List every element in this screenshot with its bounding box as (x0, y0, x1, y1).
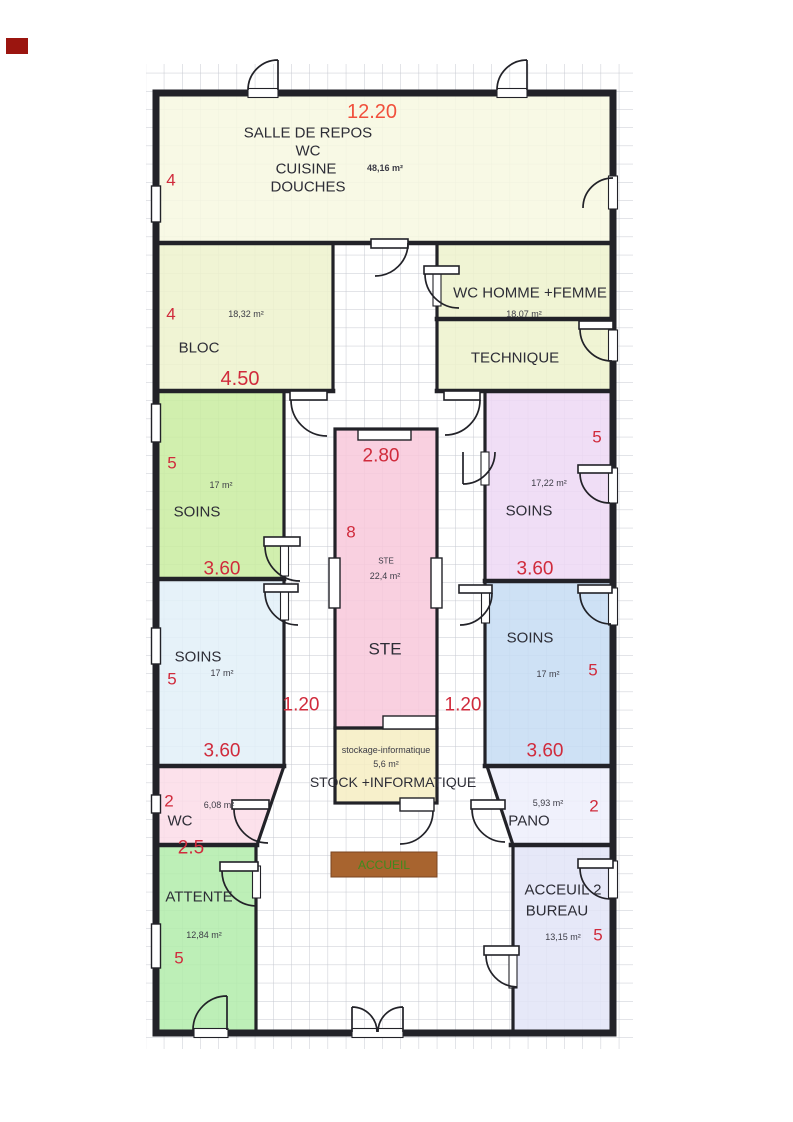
dim-soins-ne-height: 5 (592, 428, 601, 447)
window (152, 795, 161, 813)
label-pano: PANO (508, 813, 549, 830)
dim-soins-se-width: 3.60 (527, 741, 564, 762)
door-leaf (264, 584, 298, 592)
door-gap (482, 589, 490, 623)
door-leaf (459, 585, 492, 593)
label-acceuil2-line2: BUREAU (526, 903, 589, 920)
accueil-desk-label: ACCUEIL (358, 858, 410, 872)
door-leaf (579, 321, 613, 329)
label-salle-line4: DOUCHES (270, 179, 345, 196)
label-soins-sw: SOINS (175, 649, 222, 666)
page-corner-mark (6, 38, 28, 54)
dim-soins-nw-width: 3.60 (204, 559, 241, 580)
door-leaf (578, 859, 613, 868)
dim-soins-sw-width: 3.60 (204, 741, 241, 762)
label-salle-line3: CUISINE (276, 161, 337, 178)
dim-ste-height: 8 (346, 523, 355, 542)
dim-pano-height: 2 (589, 797, 598, 816)
dim-corridor-left: 1.20 (283, 695, 320, 716)
area-stock: 5,6 m² (373, 759, 399, 769)
label-stock-small: stockage-informatique (342, 745, 431, 755)
door-leaf (471, 800, 505, 809)
window-ste-right (431, 558, 442, 608)
window (152, 404, 161, 442)
dim-soins-ne-width: 3.60 (517, 559, 554, 580)
door-leaf (578, 465, 612, 473)
area-soins-ne: 17,22 m² (531, 478, 567, 488)
dim-attente-height: 5 (174, 949, 183, 968)
door-leaf (264, 537, 300, 546)
window-ste-left (329, 558, 340, 608)
dim-corridor-right: 1.20 (445, 695, 482, 716)
window (152, 186, 161, 222)
area-soins-nw: 17 m² (209, 480, 232, 490)
label-wc-homme: WC HOMME +FEMME (453, 285, 607, 302)
area-ste: 22,4 m² (370, 571, 401, 581)
door-gap (481, 452, 489, 485)
dim-bloc-width: 4.50 (221, 368, 260, 390)
dim-bloc-height: 4 (166, 305, 175, 324)
door-gap (609, 176, 618, 209)
dim-soins-se-height: 5 (588, 661, 597, 680)
label-soins-ne: SOINS (506, 503, 553, 520)
label-attente: ATTENTE (165, 889, 232, 906)
opening-stock (400, 798, 434, 811)
label-acceuil2-line1: ACCEUIL 2 (525, 882, 602, 899)
label-salle-line2: WC (296, 143, 321, 160)
area-wc-homme: 18,07 m² (506, 309, 542, 319)
window (152, 628, 161, 664)
area-acceuil2: 13,15 m² (545, 932, 581, 942)
dim-salle-width: 12.20 (347, 101, 397, 123)
label-soins-nw: SOINS (174, 504, 221, 521)
window (152, 924, 161, 968)
door-leaf (371, 239, 408, 248)
room-wc-homme-femme (437, 243, 613, 319)
dim-wc-height: 2 (164, 792, 173, 811)
door-leaf (484, 946, 519, 955)
dim-salle-height: 4 (166, 171, 175, 190)
area-soins-sw: 17 m² (210, 668, 233, 678)
floor-plan-page: ACCUEIL SALLE DE REPOS WC CUISINE DOUCHE… (0, 0, 793, 1122)
area-wc: 6,08 m² (204, 800, 235, 810)
label-stock: STOCK +INFORMATIQUE (310, 774, 476, 790)
door-gap (497, 89, 527, 98)
label-ste-small: STE (378, 557, 394, 566)
door-leaf (444, 391, 480, 400)
dim-wc-width: 2.5 (178, 838, 204, 859)
dim-soins-nw-height: 5 (167, 454, 176, 473)
area-attente: 12,84 m² (186, 930, 222, 940)
label-soins-se: SOINS (507, 630, 554, 647)
door-leaf (578, 585, 612, 593)
area-salle: 48,16 m² (367, 163, 403, 173)
dim-acceuil2-height: 5 (593, 926, 602, 945)
window-ste-top (358, 430, 411, 440)
door-gap (281, 542, 289, 576)
label-bloc: BLOC (179, 340, 220, 357)
opening-ste-stock (383, 716, 436, 729)
dim-ste-width: 2.80 (363, 446, 400, 467)
door-gap (609, 330, 618, 361)
door-leaf (232, 800, 269, 809)
label-salle-line1: SALLE DE REPOS (244, 125, 372, 142)
door-leaf (290, 391, 327, 400)
door-gap (194, 1029, 228, 1038)
floor-plan: ACCUEIL SALLE DE REPOS WC CUISINE DOUCHE… (0, 0, 793, 1122)
area-soins-se: 17 m² (536, 669, 559, 679)
door-leaf (220, 862, 258, 871)
door-leaf (424, 266, 459, 274)
label-technique: TECHNIQUE (471, 350, 559, 367)
area-pano: 5,93 m² (533, 798, 564, 808)
area-bloc: 18,32 m² (228, 309, 264, 319)
door-gap (248, 89, 278, 98)
dim-soins-sw-height: 5 (167, 670, 176, 689)
label-wc: WC (168, 813, 193, 830)
label-ste: STE (368, 640, 401, 659)
